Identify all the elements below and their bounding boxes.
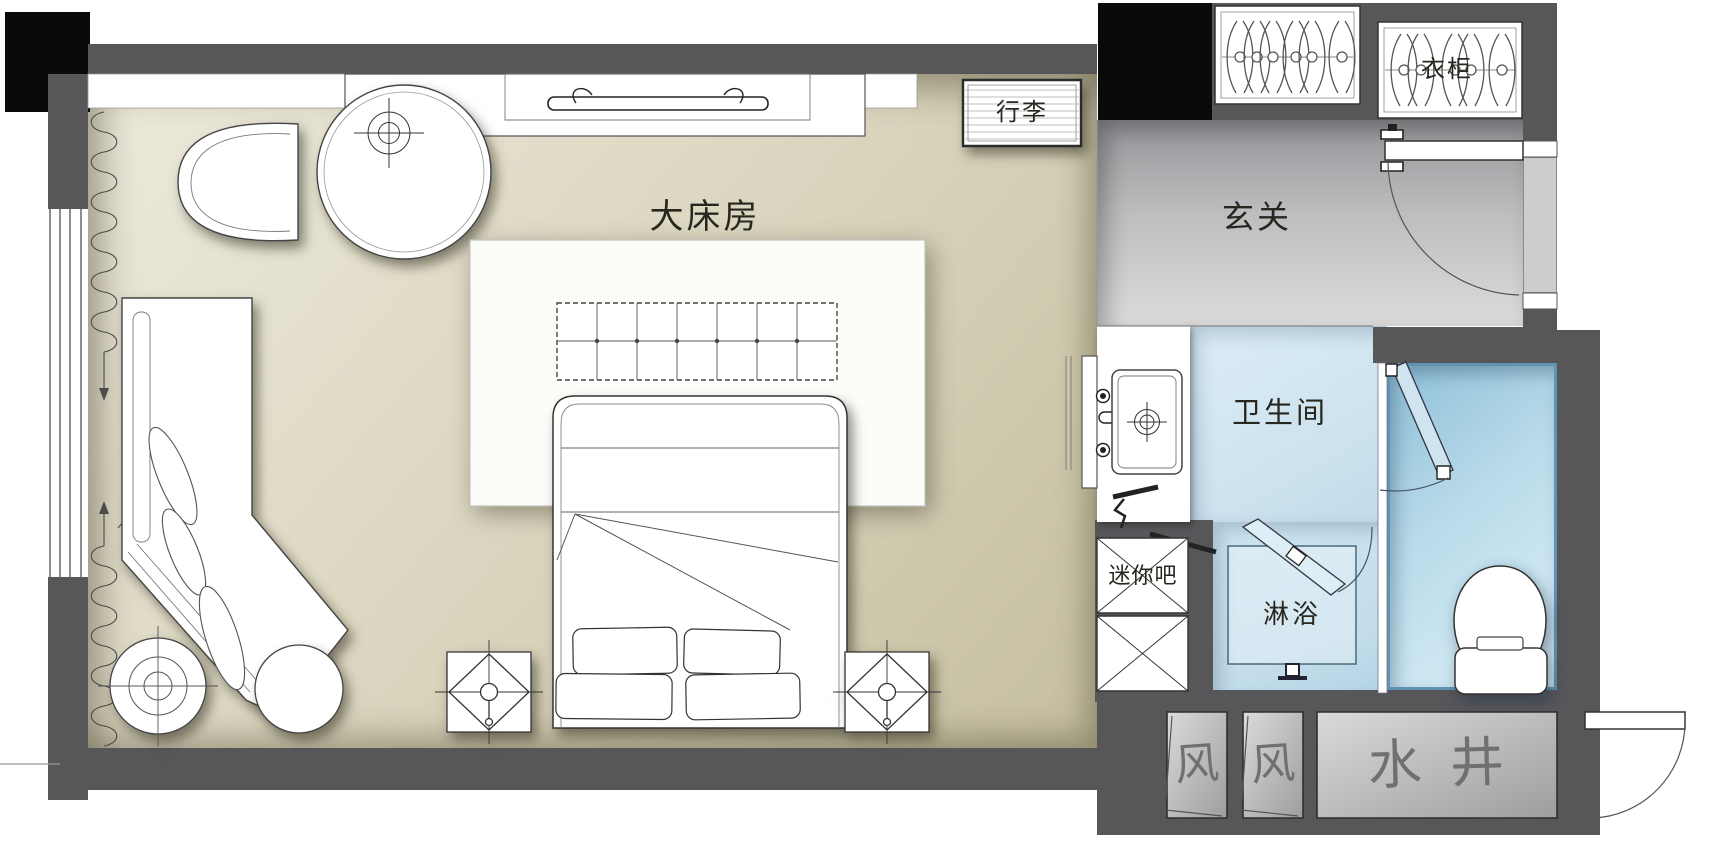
nightstand-left <box>435 640 543 744</box>
hotel-room-floor-plan: 大床房 玄关 卫生间 淋浴 迷你吧 行李 衣柜 水井 风 风 <box>0 0 1712 845</box>
service-door <box>1585 712 1685 818</box>
water-shaft-label: 水井 <box>1367 735 1532 793</box>
minibar-label: 迷你吧 <box>1108 565 1177 587</box>
stool-round <box>255 645 343 733</box>
nightstand-right <box>833 640 941 744</box>
floor-drain-icon <box>1278 664 1307 678</box>
round-table <box>317 85 491 259</box>
faucet-icon <box>1113 487 1158 528</box>
toilet-room-door <box>1380 362 1453 491</box>
window <box>47 209 88 577</box>
entry-door <box>1381 124 1557 309</box>
bathroom-label: 卫生间 <box>1232 400 1328 429</box>
bench <box>557 303 837 380</box>
toilet <box>1454 566 1547 694</box>
wardrobe-label: 衣柜 <box>1421 58 1473 82</box>
luggage-label: 行李 <box>996 101 1048 125</box>
entry-label: 玄关 <box>1222 201 1292 233</box>
linework-overlay <box>0 0 1712 845</box>
sink-basin <box>1112 370 1182 528</box>
vent-label-right: 风 <box>1250 742 1297 789</box>
vent-label-left: 风 <box>1174 742 1221 789</box>
armchair <box>178 123 298 240</box>
bed <box>553 396 847 728</box>
bedroom-label: 大床房 <box>650 201 761 235</box>
closet-left <box>1215 6 1360 104</box>
shower-label: 淋浴 <box>1263 602 1321 628</box>
minibar-cabinet <box>1097 538 1188 691</box>
glass-partition <box>1378 363 1387 693</box>
tv-console <box>88 74 917 136</box>
